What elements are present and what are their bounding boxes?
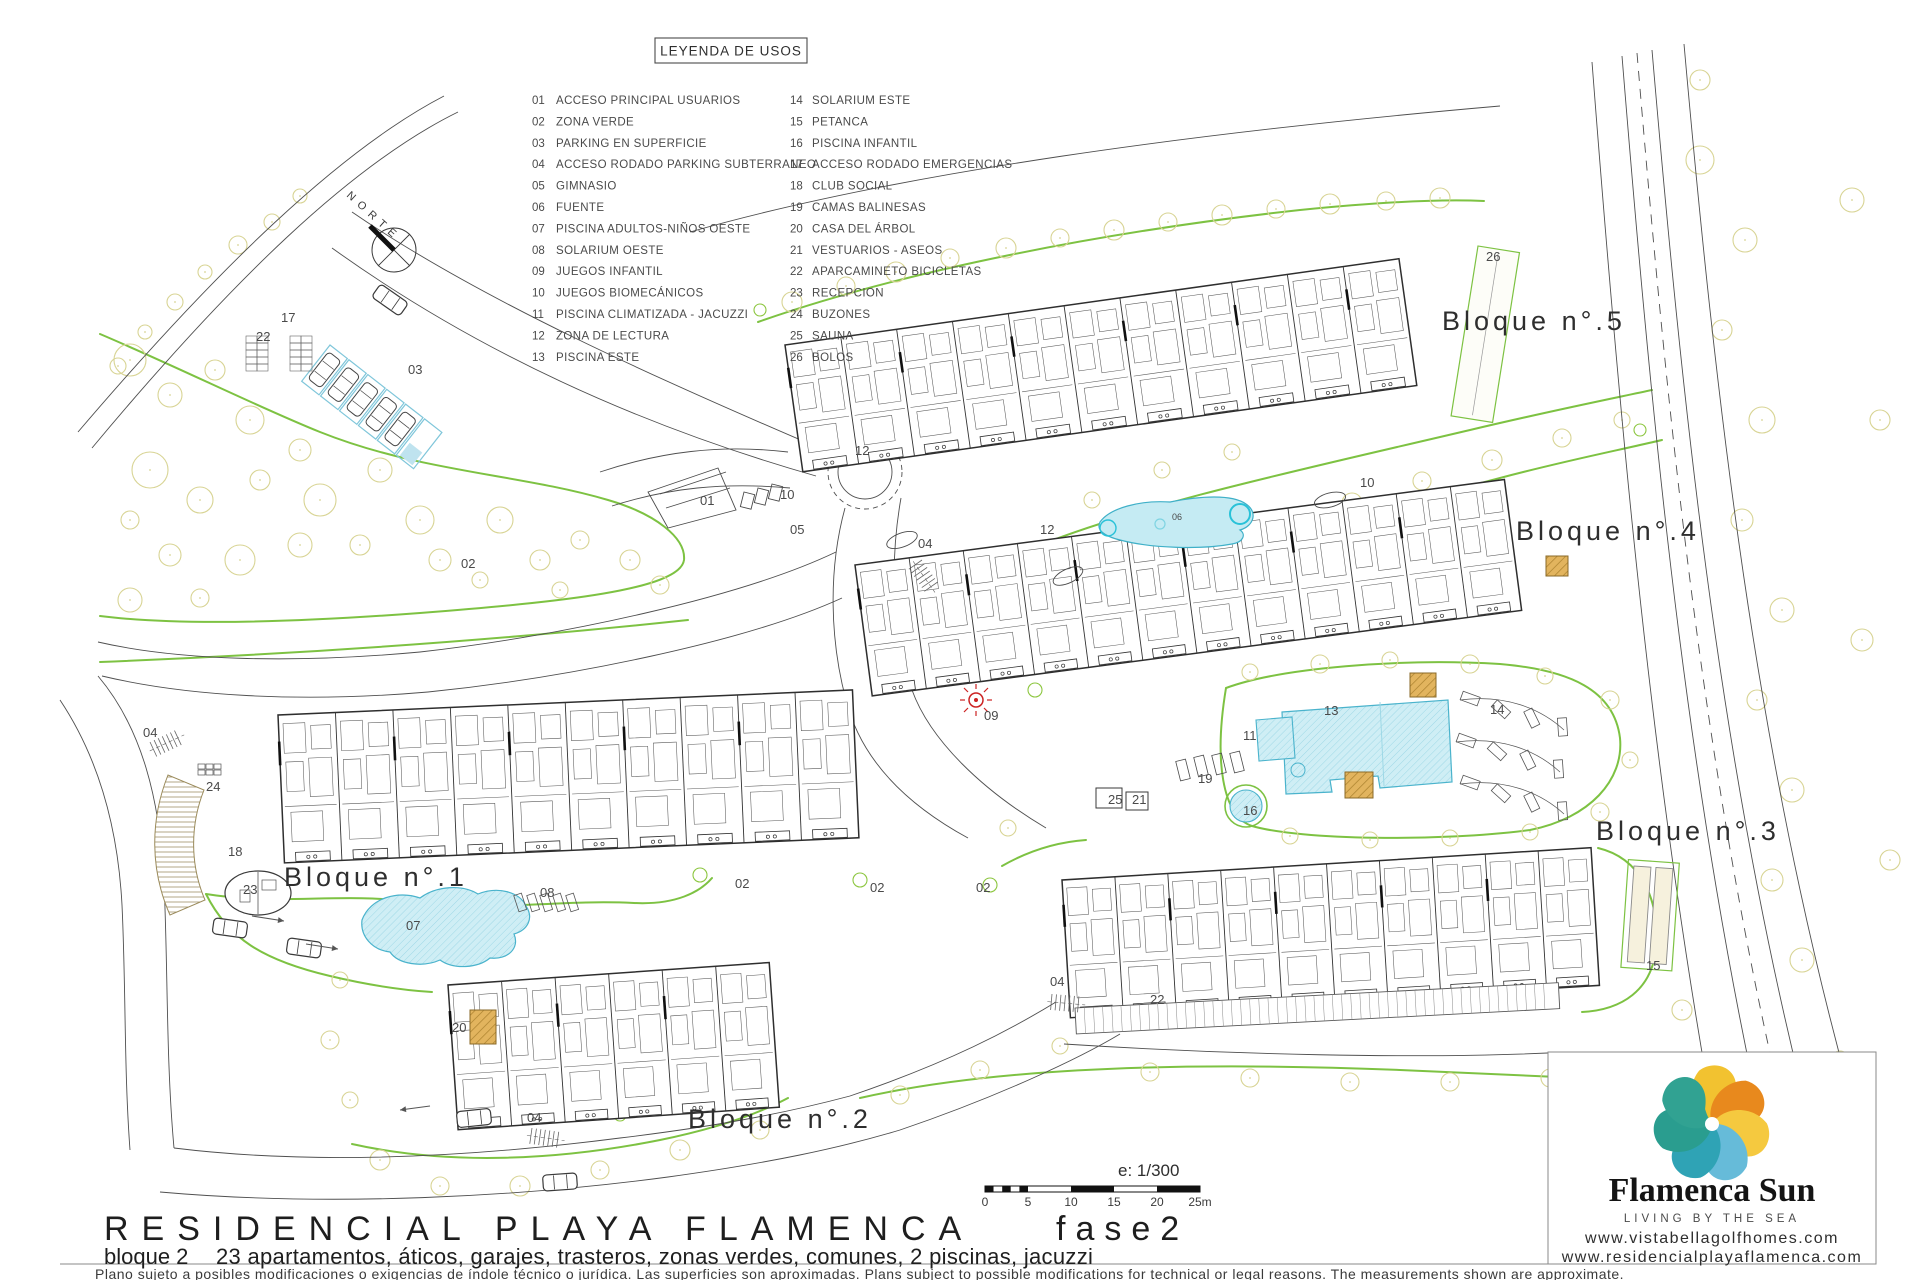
legend-item-number: 23	[790, 288, 803, 300]
legend-item-number: 03	[532, 138, 545, 150]
disclaimer: Plano sujeto a posibles modificaciones o…	[95, 1266, 1624, 1280]
scale-tick: 25m	[1188, 1195, 1211, 1209]
brand-url-1[interactable]: www.vistabellagolfhomes.com	[1584, 1230, 1839, 1247]
legend-item-label: PISCINA INFANTIL	[812, 138, 918, 150]
plan-label-06: 06	[1172, 512, 1182, 522]
brand-url-2[interactable]: www.residencialplayaflamenca.com	[1561, 1249, 1863, 1266]
scale-tick: 5	[1025, 1195, 1032, 1209]
legend-item-label: PISCINA ESTE	[556, 352, 639, 364]
legend-item-number: 02	[532, 116, 545, 128]
plan-label-24: 24	[206, 779, 220, 794]
legend-item-label: ZONA DE LECTURA	[556, 330, 669, 342]
legend-item-label: CAMAS BALINESAS	[812, 202, 926, 214]
brand-tagline: LIVING BY THE SEA	[1624, 1213, 1800, 1225]
plan-label-04: 04	[918, 536, 932, 551]
plan-label-21: 21	[1132, 792, 1146, 807]
legend-item-number: 22	[790, 266, 803, 278]
plan-label-02: 02	[870, 880, 884, 895]
legend-item-number: 25	[790, 330, 803, 342]
plan-label-08: 08	[540, 885, 554, 900]
project-title: RESIDENCIAL PLAYA FLAMENCA	[104, 1210, 974, 1248]
car-icon	[542, 1173, 577, 1191]
legend-item-number: 24	[790, 309, 803, 321]
legend-item-label: SAUNA	[812, 330, 854, 342]
plan-label-18: 18	[228, 844, 242, 859]
legend-item-number: 07	[532, 223, 545, 235]
legend-item-number: 14	[790, 95, 803, 107]
legend-item-label: BOLOS	[812, 352, 854, 364]
plan-label-22: 22	[256, 329, 270, 344]
plan-label-14: 14	[1490, 702, 1504, 717]
legend-item-number: 21	[790, 245, 803, 257]
legend-item-label: PARKING EN SUPERFICIE	[556, 138, 707, 150]
plan-label-22: 22	[1150, 992, 1164, 1007]
scale-tick: 10	[1064, 1195, 1078, 1209]
legend-item-label: ACCESO RODADO EMERGENCIAS	[812, 159, 1012, 171]
jacuzzi	[1291, 763, 1305, 777]
legend-item-label: VESTUARIOS - ASEOS	[812, 245, 943, 257]
plan-label-02: 02	[976, 880, 990, 895]
plan-label-09: 09	[984, 708, 998, 723]
legend-item-label: CASA DEL ÁRBOL	[812, 222, 916, 235]
bloque-label: Bloque n°.2	[688, 1104, 872, 1134]
legend-item-number: 09	[532, 266, 545, 278]
bloque-label: Bloque n°.4	[1516, 516, 1700, 546]
plan-label-10: 10	[1360, 475, 1374, 490]
plan-label-03: 03	[408, 362, 422, 377]
plan-label-25: 25	[1108, 792, 1122, 807]
legend-item-number: 17	[790, 159, 803, 171]
legend-item-number: 15	[790, 116, 803, 128]
project-phase: fase2	[1056, 1210, 1189, 1248]
legend-item-number: 11	[532, 309, 544, 321]
plan-label-04: 04	[527, 1110, 541, 1125]
plan-label-11: 11	[1243, 728, 1257, 743]
bloque-label: Bloque n°.1	[284, 862, 468, 892]
legend-item-number: 13	[532, 352, 545, 364]
legend-title: LEYENDA DE USOS	[660, 44, 802, 59]
plan-label-10: 10	[780, 487, 794, 502]
scale-tick: 20	[1150, 1195, 1164, 1209]
plan-label-05: 05	[790, 522, 804, 537]
legend-item-label: PETANCA	[812, 116, 868, 128]
legend-item-label: ZONA VERDE	[556, 116, 634, 128]
plan-label-04: 04	[143, 725, 157, 740]
plan-label-23: 23	[243, 882, 257, 897]
legend-item-label: CLUB SOCIAL	[812, 181, 893, 193]
bloque-label: Bloque n°.3	[1596, 816, 1780, 846]
plan-label-20: 20	[452, 1020, 466, 1035]
legend-item-number: 16	[790, 138, 803, 150]
plan-label-26: 26	[1486, 249, 1500, 264]
plan-label-19: 19	[1198, 771, 1212, 786]
plan-label-16: 16	[1243, 803, 1257, 818]
pool-heated	[1256, 717, 1295, 761]
legend-item-number: 18	[790, 181, 803, 193]
plan-label-07: 07	[406, 918, 420, 933]
scale-tick: 0	[982, 1195, 989, 1209]
legend-item-number: 10	[532, 288, 545, 300]
brand-block: Flamenca Sun LIVING BY THE SEA www.vista…	[1548, 1052, 1876, 1266]
legend-item-label: PISCINA ADULTOS-NIÑOS OESTE	[556, 222, 750, 235]
legend-item-label: RECEPCION	[812, 288, 884, 300]
legend-item-label: SOLARIUM OESTE	[556, 245, 664, 257]
plan-label-15: 15	[1646, 958, 1660, 973]
legend-item-label: BUZONES	[812, 309, 870, 321]
site-plan-canvas: NORTE LEYENDA DE USOS 01ACCESO PRINCIPAL…	[0, 0, 1920, 1280]
tree-house	[470, 1010, 496, 1044]
legend-item-label: JUEGOS INFANTIL	[556, 266, 663, 278]
legend-item-label: ACCESO PRINCIPAL USUARIOS	[556, 95, 740, 107]
legend-item-label: PISCINA CLIMATIZADA - JACUZZI	[556, 309, 748, 321]
legend-item-number: 12	[532, 330, 545, 342]
plan-label-04: 04	[1050, 974, 1064, 989]
plan-label-01: 01	[700, 493, 714, 508]
legend-item-number: 06	[532, 202, 545, 214]
legend-item-number: 08	[532, 245, 545, 257]
legend-item-label: GIMNASIO	[556, 181, 617, 193]
plan-label-13: 13	[1324, 703, 1338, 718]
legend-item-number: 20	[790, 223, 803, 235]
plan-label-12: 12	[855, 443, 869, 458]
legend-item-number: 01	[532, 95, 545, 107]
legend-item-number: 04	[532, 159, 545, 171]
legend-item-label: JUEGOS BIOMECÁNICOS	[556, 287, 704, 300]
legend-item-number: 26	[790, 352, 803, 364]
plan-label-02: 02	[735, 876, 749, 891]
legend-item-label: FUENTE	[556, 202, 604, 214]
car-icon	[456, 1108, 491, 1127]
legend-item-number: 05	[532, 181, 545, 193]
plan-label-12: 12	[1040, 522, 1054, 537]
scale-tick: 15	[1107, 1195, 1121, 1209]
legend-item-label: APARCAMINETO BICICLETAS	[812, 266, 982, 278]
bloque-building-1	[278, 690, 859, 863]
brand-name: Flamenca Sun	[1609, 1172, 1816, 1209]
scale-label: e: 1/300	[1118, 1161, 1179, 1180]
legend-item-label: ACCESO RODADO PARKING SUBTERRANEO	[556, 159, 816, 171]
legend-item-number: 19	[790, 202, 803, 214]
legend-item-label: SOLARIUM ESTE	[812, 95, 911, 107]
bloque-label: Bloque n°.5	[1442, 306, 1626, 336]
plan-label-02: 02	[461, 556, 475, 571]
plan-label-17: 17	[281, 310, 295, 325]
